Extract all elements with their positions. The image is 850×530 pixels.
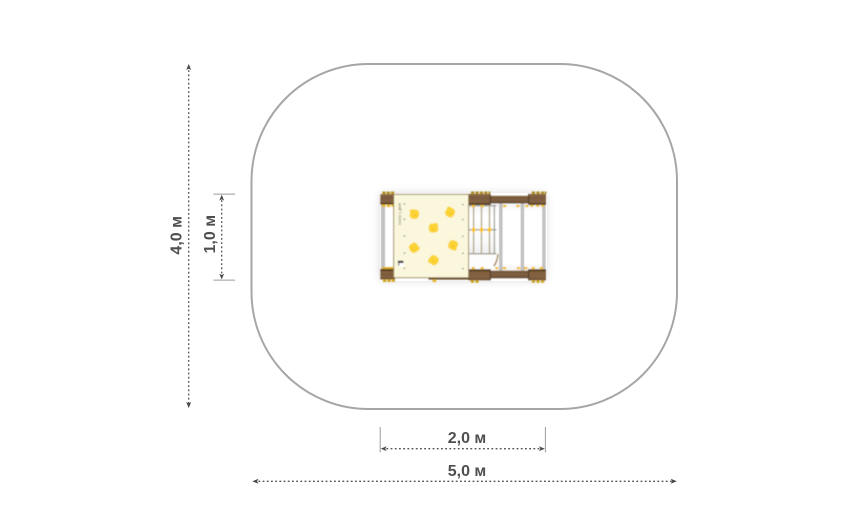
svg-text:2,0 м: 2,0 м xyxy=(448,430,487,447)
svg-text:4,0 м: 4,0 м xyxy=(168,216,185,255)
svg-text:1,0 м: 1,0 м xyxy=(202,215,219,254)
svg-text:04190-1 ДМФ: 04190-1 ДМФ xyxy=(398,203,402,225)
svg-text:5,0 м: 5,0 м xyxy=(448,463,487,480)
